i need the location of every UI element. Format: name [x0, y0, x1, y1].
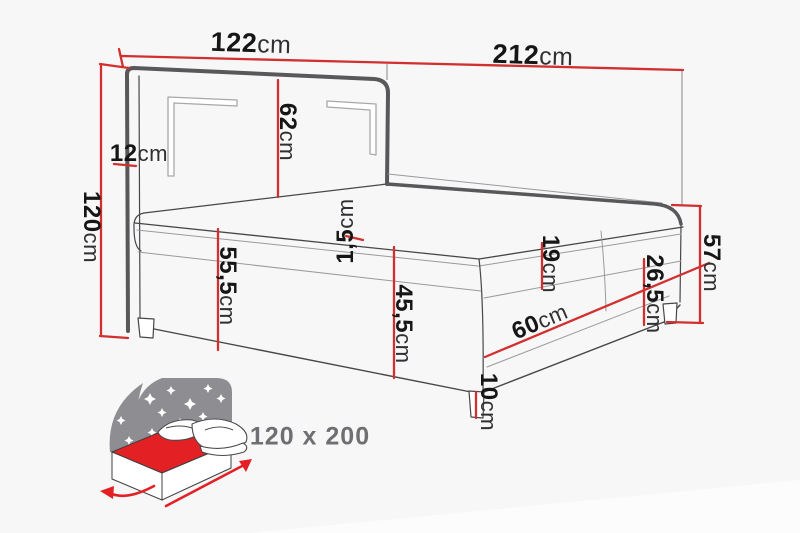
- dim-tick-57-bottom: [667, 322, 703, 323]
- bed-icon-arrowhead-left: [100, 486, 114, 499]
- near-corner-edge: [479, 259, 483, 391]
- mattress-far-edge: [387, 184, 681, 224]
- dim-label-26-5cm: 26,5cm: [642, 254, 666, 333]
- mattress-bottom-seam-front: [138, 252, 481, 291]
- dim-label-212cm: 212cm: [492, 41, 574, 71]
- bed-size-label: 120 x 200: [250, 423, 370, 452]
- diagram-linework: [0, 0, 800, 533]
- dim-tick-120-bottom: [100, 336, 128, 338]
- dim-label-62cm: 62cm: [275, 103, 299, 161]
- dim-tick-57-top: [672, 205, 701, 206]
- dim-label-122cm: 122cm: [210, 29, 292, 59]
- mattress-left-corner: [134, 213, 144, 251]
- dim-label-45-5cm: 45,5cm: [391, 284, 415, 363]
- extension-lines: [387, 64, 682, 206]
- bed-dimension-diagram: 122cm 212cm 120cm 12cm 62cm 1,5cm 55,5cm…: [0, 0, 800, 533]
- dim-label-12cm: 12cm: [110, 142, 168, 166]
- floor-shading: [250, 480, 800, 533]
- bed-drawing: [127, 68, 683, 418]
- dim-label-1-5cm: 1,5cm: [334, 198, 358, 263]
- topper-seam-front: [137, 230, 478, 266]
- mattress-front-edge: [135, 223, 479, 259]
- headboard-front-edge: [139, 76, 140, 318]
- led-light-right-icon: [327, 101, 376, 155]
- dim-label-19cm: 19cm: [538, 235, 562, 293]
- headboard-leg: [138, 318, 154, 338]
- dim-tick-120-top: [100, 64, 129, 68]
- dim-label-55-5cm: 55,5cm: [215, 246, 239, 325]
- dim-line-top: [121, 56, 683, 70]
- dim-label-120cm: 120cm: [79, 191, 103, 263]
- foot-divider-seam: [601, 231, 606, 311]
- dim-label-57cm: 57cm: [699, 234, 723, 292]
- dim-label-10cm: 10cm: [476, 373, 500, 431]
- bed-right-edge: [680, 226, 681, 302]
- led-light-left-icon: [168, 97, 237, 176]
- dim-tick-top-left: [119, 49, 123, 67]
- bed-icon: [100, 378, 252, 506]
